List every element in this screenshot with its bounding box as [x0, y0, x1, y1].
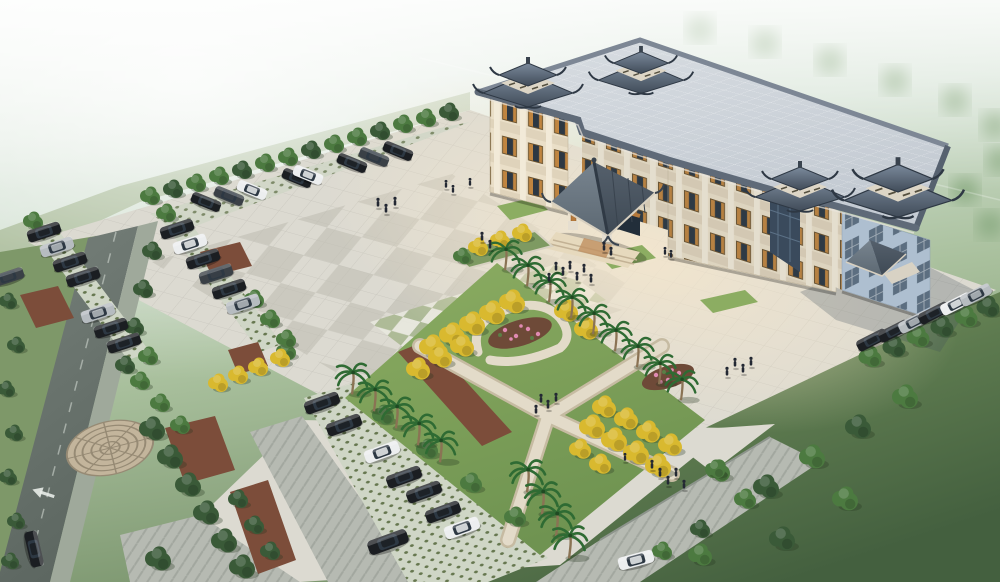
rendering-stage [0, 0, 1000, 582]
rendering-canvas [0, 0, 1000, 582]
